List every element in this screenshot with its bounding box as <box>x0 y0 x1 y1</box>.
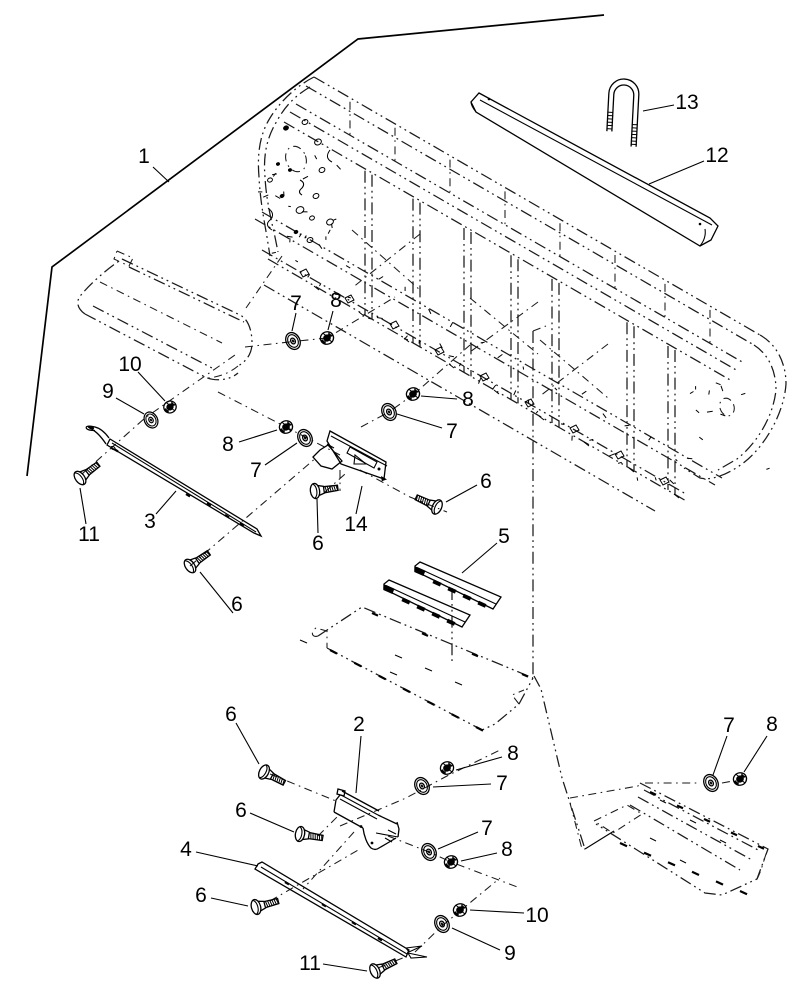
svg-text:3: 3 <box>144 510 156 533</box>
svg-text:9: 9 <box>504 942 516 965</box>
svg-text:11: 11 <box>299 952 321 975</box>
svg-text:9: 9 <box>102 380 114 403</box>
svg-text:7: 7 <box>250 459 262 482</box>
svg-text:6: 6 <box>235 799 247 822</box>
svg-text:10: 10 <box>525 904 548 927</box>
svg-text:8: 8 <box>330 289 342 312</box>
svg-text:12: 12 <box>705 144 728 167</box>
svg-text:4: 4 <box>180 838 192 861</box>
svg-text:2: 2 <box>353 713 365 736</box>
svg-text:14: 14 <box>344 513 368 536</box>
svg-text:8: 8 <box>766 713 778 736</box>
svg-text:8: 8 <box>222 433 234 456</box>
svg-text:6: 6 <box>312 532 324 555</box>
svg-text:7: 7 <box>481 817 493 840</box>
svg-text:8: 8 <box>507 742 519 765</box>
svg-text:13: 13 <box>675 91 698 114</box>
svg-text:7: 7 <box>290 292 302 315</box>
svg-text:1: 1 <box>138 145 150 168</box>
svg-text:5: 5 <box>498 525 510 548</box>
svg-text:6: 6 <box>195 884 207 907</box>
svg-text:7: 7 <box>496 772 508 795</box>
svg-text:8: 8 <box>501 838 513 861</box>
svg-text:6: 6 <box>225 703 237 726</box>
svg-text:7: 7 <box>446 420 458 443</box>
svg-text:6: 6 <box>480 470 492 493</box>
svg-text:8: 8 <box>462 388 474 411</box>
svg-text:11: 11 <box>78 523 100 546</box>
svg-text:7: 7 <box>723 714 735 737</box>
